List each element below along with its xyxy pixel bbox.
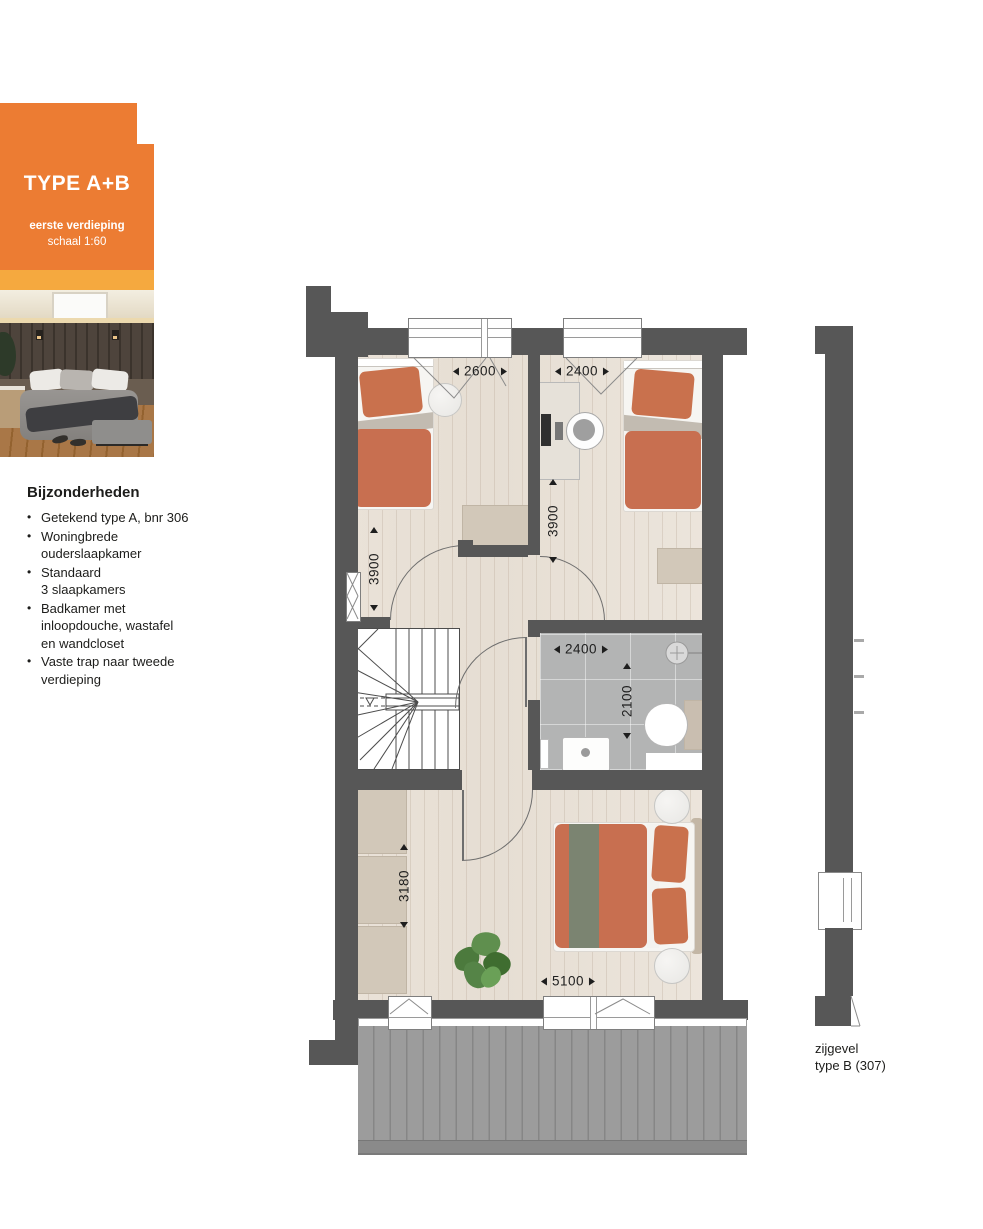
tick-mark [854, 675, 864, 678]
dim-arrow-down-icon [400, 922, 408, 928]
plant [452, 930, 514, 990]
photo-pillow [59, 369, 94, 391]
staircase [352, 628, 460, 770]
side-elevation-foot [815, 996, 851, 1026]
side-elevation-wall-lower [825, 928, 853, 996]
type-badge-body [0, 144, 154, 270]
wall-bathroom-top [540, 620, 702, 633]
feature-item: Standaard 3 slaapkamers [27, 564, 227, 599]
cabinet [657, 548, 703, 584]
dim-arrow-down-icon [370, 605, 378, 611]
wall-bathroom-left [528, 700, 540, 770]
badge-title: TYPE A+B [0, 172, 154, 196]
side-elevation-edge-line [850, 994, 864, 1028]
bedroom-photo [0, 290, 154, 457]
wall-lamp-icon [36, 330, 43, 340]
dim-arrow-up-icon [623, 663, 631, 669]
dim-arrow-left-icon [541, 977, 547, 985]
dim-bedroom1-width: 2600 [453, 364, 507, 379]
dim-arrow-left-icon [453, 367, 459, 375]
features-block: Bijzonderheden Getekend type A, bnr 306 … [27, 484, 227, 689]
photo-skylight [52, 292, 108, 320]
features-list: Getekend type A, bnr 306 Woningbrede oud… [27, 509, 227, 688]
wall-lamp-icon [112, 330, 119, 340]
photo-pillow [91, 368, 129, 392]
dim-arrow-up-icon [549, 479, 557, 485]
shower-head-icon [662, 638, 704, 668]
wall-bedroom-divider [528, 355, 540, 555]
dim-arrow-right-icon [602, 645, 608, 653]
deck-planks [358, 1026, 747, 1140]
badge-scale-label: schaal 1:60 [0, 236, 154, 248]
window-opening-glyph-icon [388, 996, 430, 1016]
photo-bench [92, 420, 152, 444]
wall-top [333, 328, 747, 355]
wall-bathroom-corner [528, 620, 540, 637]
dim-arrow-right-icon [589, 977, 595, 985]
bathroom-niche-opening [646, 755, 702, 770]
dim-arrow-up-icon [400, 844, 408, 850]
monitor-icon [541, 414, 551, 446]
wall-left [335, 328, 358, 1065]
window-bedroom1 [408, 318, 512, 358]
badge-floor-label: eerste verdieping [0, 220, 154, 232]
tick-mark [854, 639, 864, 642]
brochure-page: TYPE A+B eerste verdieping schaal 1:60 B… [0, 0, 983, 1229]
window-bedroom2 [563, 318, 642, 358]
feature-item: Vaste trap naar tweede verdieping [27, 653, 227, 688]
tick-mark [854, 711, 864, 714]
badge-accent-strip [0, 270, 154, 290]
toilet [644, 703, 688, 747]
window-opening-glyph-icon [543, 996, 653, 1018]
wall-hall-top [473, 545, 528, 557]
feature-item: Getekend type A, bnr 306 [27, 509, 227, 527]
dim-arrow-left-icon [555, 367, 561, 375]
wall-master-top-left [355, 770, 462, 790]
dim-bedroom2-width: 2400 [555, 364, 609, 379]
dim-arrow-right-icon [501, 367, 507, 375]
wall-stub [458, 540, 473, 557]
side-elevation-label: zijgevel type B (307) [815, 1040, 886, 1074]
wall-bottom-left-stub [309, 1040, 358, 1065]
wall-right [702, 355, 723, 1020]
deck-fascia [358, 1140, 747, 1155]
dim-bedroom2-depth: 3900 [544, 479, 562, 563]
dim-bedroom1-depth: 3900 [365, 527, 383, 611]
dim-arrow-left-icon [554, 645, 560, 653]
features-heading: Bijzonderheden [27, 484, 227, 501]
type-badge [0, 103, 137, 144]
door-leaf-bathroom [525, 637, 527, 707]
balcony-deck [358, 1018, 747, 1154]
wall-top-left-stub [306, 286, 331, 314]
wardrobe [356, 926, 407, 994]
side-elevation-window [818, 872, 862, 930]
dim-arrow-down-icon [623, 733, 631, 739]
dim-master-width: 5100 [541, 974, 595, 989]
dim-arrow-down-icon [549, 557, 557, 563]
faucet-icon [581, 748, 590, 757]
feature-item: Badkamer met inloopdouche, wastafel en w… [27, 600, 227, 653]
dim-arrow-right-icon [603, 367, 609, 375]
keyboard-icon [555, 422, 563, 440]
feature-item: Woningbrede ouderslaapkamer [27, 528, 227, 563]
bed-double [553, 818, 703, 954]
dim-bathroom-depth: 2100 [618, 663, 636, 739]
dim-arrow-up-icon [370, 527, 378, 533]
desk-chair-seat [573, 419, 595, 441]
wall-master-top-right [532, 770, 702, 790]
window-x-glyph-icon [346, 572, 359, 620]
door-leaf-master [462, 790, 464, 860]
side-elevation-wall [825, 354, 853, 872]
side-elevation-label-line1: zijgevel [815, 1040, 886, 1057]
dim-bathroom-width: 2400 [554, 642, 608, 657]
side-elevation-cap [815, 326, 853, 354]
dim-master-depth: 3180 [395, 844, 413, 928]
towel [540, 739, 549, 769]
side-elevation-label-line2: type B (307) [815, 1057, 886, 1074]
side-table [654, 788, 690, 824]
side-table [654, 948, 690, 984]
